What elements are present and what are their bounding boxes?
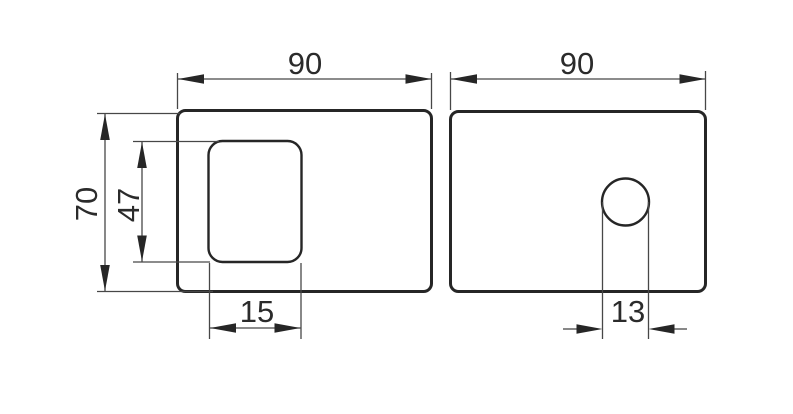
dim-right-width: 90	[451, 46, 706, 110]
arrowhead-left-icon	[649, 324, 675, 334]
arrowhead-up-icon	[100, 114, 110, 140]
right-view-body-outline	[451, 112, 706, 292]
arrowhead-right-icon	[275, 323, 301, 333]
hole-circle	[602, 179, 649, 226]
arrowhead-left-icon	[210, 323, 236, 333]
arrowhead-left-icon	[451, 74, 477, 84]
arrowhead-right-icon	[680, 74, 706, 84]
dim-label-hole-width: 13	[611, 294, 645, 329]
arrowhead-down-icon	[100, 265, 110, 291]
drawing-canvas: 90 90 70 47	[0, 0, 793, 414]
slot-cutout-outline	[209, 141, 302, 262]
dim-label-slot-height: 47	[111, 188, 146, 222]
technical-drawing: 90 90 70 47	[0, 0, 793, 414]
left-view	[178, 111, 432, 292]
dim-label-left-height: 70	[69, 187, 104, 221]
arrowhead-right-icon	[406, 74, 432, 84]
right-view	[451, 112, 706, 292]
arrowhead-up-icon	[137, 142, 147, 168]
arrowhead-down-icon	[137, 236, 147, 262]
dim-left-width: 90	[178, 46, 432, 109]
dim-label-left-width: 90	[288, 46, 322, 81]
dim-label-slot-width: 15	[240, 294, 274, 329]
dim-label-right-width: 90	[560, 46, 594, 81]
arrowhead-left-icon	[178, 74, 204, 84]
arrowhead-right-icon	[577, 324, 603, 334]
